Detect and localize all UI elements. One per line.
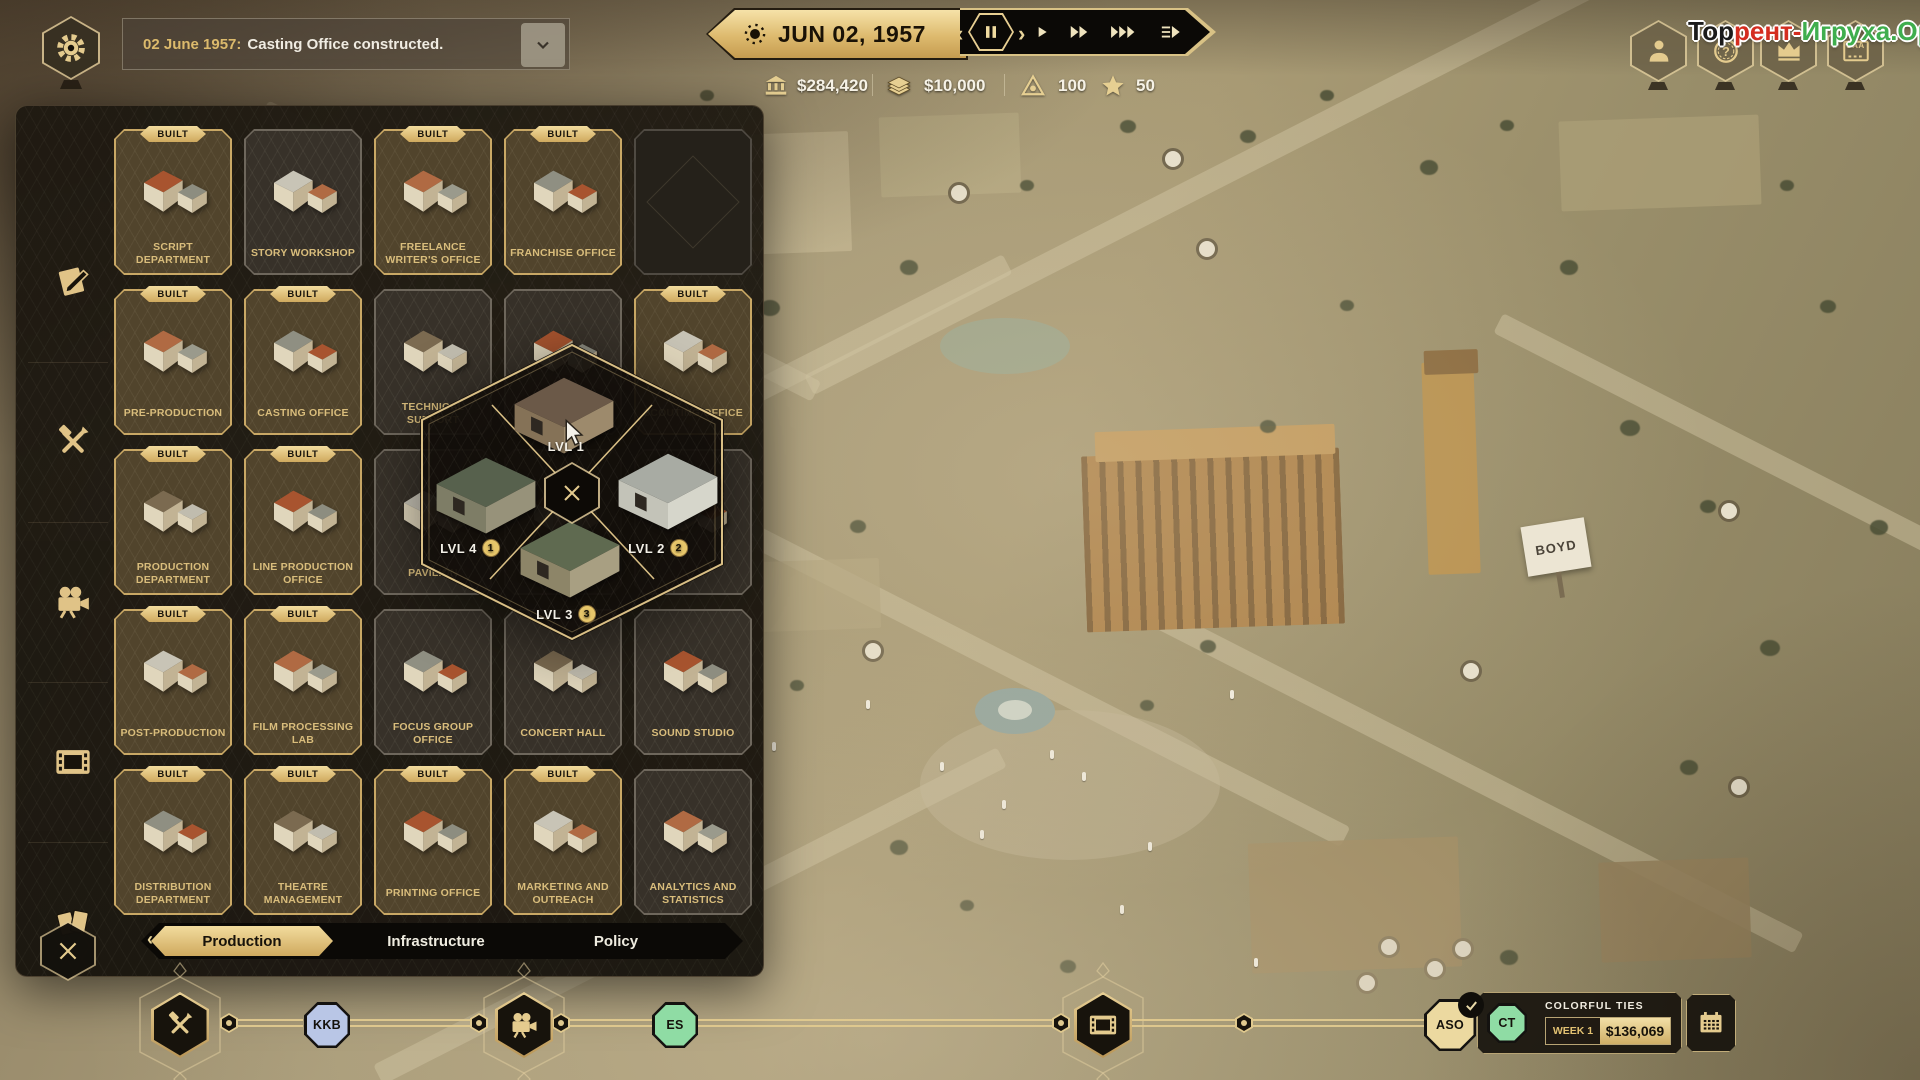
built-badge: BUILT [660,286,726,302]
speed-play-3x-button[interactable] [1106,10,1140,54]
map-tree [1620,420,1640,436]
map-person [1082,772,1086,781]
right-chevron-icon: › [1018,21,1025,47]
building-card-printing-office[interactable]: BUILTPRINTING OFFICE [374,769,492,915]
building-illustration [134,481,212,539]
building-illustration [134,321,212,379]
building-card-marketing-and-outreach[interactable]: BUILTMARKETING AND OUTREACH [504,769,622,915]
built-badge: BUILT [270,606,336,622]
built-badge: BUILT [140,446,206,462]
notification-expand-button[interactable] [521,23,565,67]
built-badge: BUILT [530,766,596,782]
building-name: STORY WORKSHOP [249,240,357,268]
building-card-analytics-and-statistics[interactable]: ANALYTICS AND STATISTICS [634,769,752,915]
film-week: WEEK 1 [1546,1018,1600,1044]
map-person [980,830,984,839]
calendar-icon [1697,1009,1725,1037]
pause-icon [981,22,1001,42]
building-illustration [394,161,472,219]
map-tree [790,680,804,691]
map-tree [1260,420,1276,433]
building-illustration [264,161,342,219]
current-date: JUN 02, 1957 [778,21,926,48]
building-illustration [654,641,732,699]
building-name: CASTING OFFICE [249,400,357,428]
map-gazebo [1196,238,1218,260]
notification-message: Casting Office constructed. [247,36,443,53]
map-tree [1870,520,1888,535]
active-film-panel[interactable]: CT COLORFUL TIES WEEK 1 $136,069 [1477,992,1682,1054]
map-tree [1780,180,1794,191]
pipeline-stage-production[interactable] [495,992,553,1058]
level-count-badge: 3 [578,605,596,623]
map-person [1120,905,1124,914]
map-person [772,742,776,751]
play-icon [1034,24,1050,40]
building-card-pre-production[interactable]: BUILTPRE-PRODUCTION [114,289,232,435]
map-gazebo [1728,776,1750,798]
map-tree [890,840,908,855]
map-person [866,700,870,709]
building-name: FRANCHISE OFFICE [509,240,617,268]
film-badge-es[interactable]: ES [652,1002,698,1048]
map-tree [1020,180,1034,191]
map-person [1002,800,1006,809]
star-icon [1100,73,1126,99]
completed-check-icon [1458,992,1484,1018]
film-badge-kkb[interactable]: KKB [304,1002,350,1048]
building-card-story-workshop[interactable]: STORY WORKSHOP [244,129,362,275]
game-viewport: BOYD 02 June 1957: Casting Office constr… [0,0,1920,1080]
map-building [1421,361,1480,575]
watermark-part2: рент- [1734,16,1801,46]
built-badge: BUILT [270,446,336,462]
date-plaque: JUN 02, 1957 [708,10,966,58]
mouse-cursor [560,418,590,448]
building-name: LINE PRODUCTION OFFICE [249,560,357,588]
watermark-part3: Игруха.Орг [1801,16,1920,46]
pipeline-stage-preproduction[interactable] [151,992,209,1058]
building-illustration [264,321,342,379]
building-name: POST-PRODUCTION [119,720,227,748]
map-gazebo [862,640,884,662]
build-menu-tabs: ‹ProductionInfrastructurePolicy [141,923,743,959]
film-icon [54,743,92,781]
resource-treasury-value: $284,420 [797,76,868,96]
speed-play-2x-button[interactable] [1064,10,1094,54]
camera-icon [54,583,92,621]
map-building [759,558,881,632]
map-tree [1140,700,1154,711]
building-name: DISTRIBUTION DEPARTMENT [119,880,227,908]
pipeline-track [1132,1019,1424,1027]
pipeline-track [350,1019,471,1027]
building-card-post-production[interactable]: BUILTPOST-PRODUCTION [114,609,232,755]
building-card-casting-office[interactable]: BUILTCASTING OFFICE [244,289,362,435]
building-name: MARKETING AND OUTREACH [509,880,617,908]
building-card[interactable] [634,129,752,275]
map-tree [1340,300,1354,311]
tools-icon [165,1010,195,1040]
film-pipeline-bar: KKB ES ASO CT COLORFUL TIES WEEK 1 $136,… [0,955,1920,1080]
map-person [1148,842,1152,851]
building-card-script-department[interactable]: BUILTSCRIPT DEPARTMENT [114,129,232,275]
resource-influence-value: 100 [1058,76,1086,96]
building-name: FILM PROCESSING LAB [249,720,357,748]
map-tree [1420,160,1438,175]
map-building [1558,115,1761,212]
sun-icon [742,21,768,47]
map-building [1598,857,1751,962]
building-card-line-production-office[interactable]: BUILTLINE PRODUCTION OFFICE [244,449,362,595]
map-tree [1120,120,1136,133]
pipeline-node [552,1013,570,1033]
built-badge: BUILT [140,286,206,302]
pipeline-track [698,1019,1053,1027]
tab-production[interactable]: Production [151,926,333,956]
building-card-theatre-management[interactable]: BUILTTHEATRE MANAGEMENT [244,769,362,915]
pipeline-node [1052,1013,1070,1033]
building-card-franchise-office[interactable]: BUILTFRANCHISE OFFICE [504,129,622,275]
building-card-production-department[interactable]: BUILTPRODUCTION DEPARTMENT [114,449,232,595]
map-tree [1760,640,1780,656]
close-panel-button[interactable] [40,921,96,981]
building-illustration [264,641,342,699]
cash-icon [886,73,912,99]
built-badge: BUILT [140,606,206,622]
gear-icon [55,32,87,64]
map-gazebo [1460,660,1482,682]
script-icon [54,263,92,301]
tab-infrastructure[interactable]: Infrastructure [346,923,526,959]
tab-chevron-icon: ‹ [147,929,153,950]
map-building [1424,349,1479,375]
building-illustration [134,161,212,219]
person-icon [1644,36,1674,66]
map-person [1230,690,1234,699]
level-label: LVL 4 [440,541,477,556]
building-illustration [134,641,212,699]
tab-policy[interactable]: Policy [531,923,701,959]
pavilion-level-selector: LVL 1 LVL 2 2 LVL 3 3 LVL 4 1 [420,343,724,641]
speed-play-1x-button[interactable] [1030,10,1054,54]
map-building [1248,836,1462,973]
influence-icon [1020,73,1046,99]
building-illustration [264,481,342,539]
built-badge: BUILT [270,286,336,302]
building-illustration [524,641,602,699]
level-label: LVL 2 [628,541,665,556]
close-icon [55,938,81,964]
ff-icon [1068,21,1090,43]
level-count-badge: 2 [670,539,688,557]
release-calendar-button[interactable] [1686,994,1736,1052]
building-name: THEATRE MANAGEMENT [249,880,357,908]
film-box-office: $136,069 [1600,1018,1670,1044]
notification-date: 02 June 1957: [143,36,241,53]
close-level-selector-button[interactable] [544,462,600,524]
map-tree [900,260,918,275]
building-illustration [524,161,602,219]
map-tree [850,520,866,533]
category-production[interactable] [54,583,92,621]
map-tree [960,900,974,911]
built-badge: BUILT [400,766,466,782]
resource-cash-value: $10,000 [924,76,985,96]
map-tree [1240,130,1256,143]
close-icon [560,481,584,505]
building-name: FREELANCE WRITER'S OFFICE [379,240,487,268]
notification-bar[interactable]: 02 June 1957: Casting Office constructed… [122,18,570,70]
building-card-film-processing-lab[interactable]: BUILTFILM PROCESSING LAB [244,609,362,755]
category-preproduction[interactable] [54,423,92,461]
film-icon [1088,1010,1118,1040]
building-name: PRINTING OFFICE [379,880,487,908]
map-gazebo [948,182,970,204]
building-illustration [524,801,602,859]
map-tree [1560,260,1578,275]
building-illustration [394,641,472,699]
building-name: SOUND STUDIO [639,720,747,748]
map-gazebo [1162,148,1184,170]
pipeline-node [1235,1013,1253,1033]
building-illustration [654,801,732,859]
watermark: Торрент-Игруха.Орг [1688,16,1920,47]
built-badge: BUILT [530,126,596,142]
pipeline-track [570,1019,652,1027]
map-person [1050,750,1054,759]
film-title: COLORFUL TIES [1545,1000,1644,1012]
speed-pause-button[interactable]: ‹ › [968,13,1014,51]
category-postproduction[interactable] [54,743,92,781]
level-count-badge: 1 [482,539,500,557]
profile-button[interactable] [1630,20,1687,82]
pipeline-track [238,1019,303,1027]
built-badge: BUILT [140,126,206,142]
speed-skip-to-date-button[interactable] [1156,10,1186,54]
map-tree [1200,640,1216,653]
built-badge: BUILT [140,766,206,782]
building-name: PRODUCTION DEPARTMENT [119,560,227,588]
map-tree [1500,120,1514,131]
building-name: PRE-PRODUCTION [119,400,227,428]
fff-icon [1110,19,1136,45]
building-name: FOCUS GROUP OFFICE [379,720,487,748]
built-badge: BUILT [400,126,466,142]
category-scripts[interactable] [54,263,92,301]
map-tree [1820,300,1836,313]
map-tree [1700,500,1716,513]
map-person [940,762,944,771]
film-badge-aso[interactable]: ASO [1424,999,1476,1051]
built-badge: BUILT [270,766,336,782]
chevron-down-icon [533,35,553,55]
building-illustration [394,801,472,859]
building-name: SCRIPT DEPARTMENT [119,240,227,268]
watermark-part1: Тор [1688,16,1734,46]
map-gazebo [1718,500,1740,522]
pipeline-node [220,1013,238,1033]
map-billboard: BOYD [1520,517,1591,576]
pipeline-stage-postproduction[interactable] [1074,992,1132,1058]
map-tree [1680,760,1698,775]
pipeline-node [470,1013,488,1033]
building-name: CONCERT HALL [509,720,617,748]
building-card-freelance-writer-s-office[interactable]: BUILTFREELANCE WRITER'S OFFICE [374,129,492,275]
resource-stars-value: 50 [1136,76,1155,96]
speed-bar: ‹ › [960,10,1212,54]
building-card-distribution-department[interactable]: BUILTDISTRIBUTION DEPARTMENT [114,769,232,915]
bank-icon [763,73,789,99]
skip-icon [1160,21,1182,43]
level-label: LVL 3 [536,607,573,622]
building-illustration [264,801,342,859]
map-building [1081,448,1345,633]
tools-icon [54,423,92,461]
camera-icon [509,1010,539,1040]
building-illustration [134,801,212,859]
film-badge-ct: CT [1487,1003,1527,1043]
building-name: ANALYTICS AND STATISTICS [639,880,747,908]
